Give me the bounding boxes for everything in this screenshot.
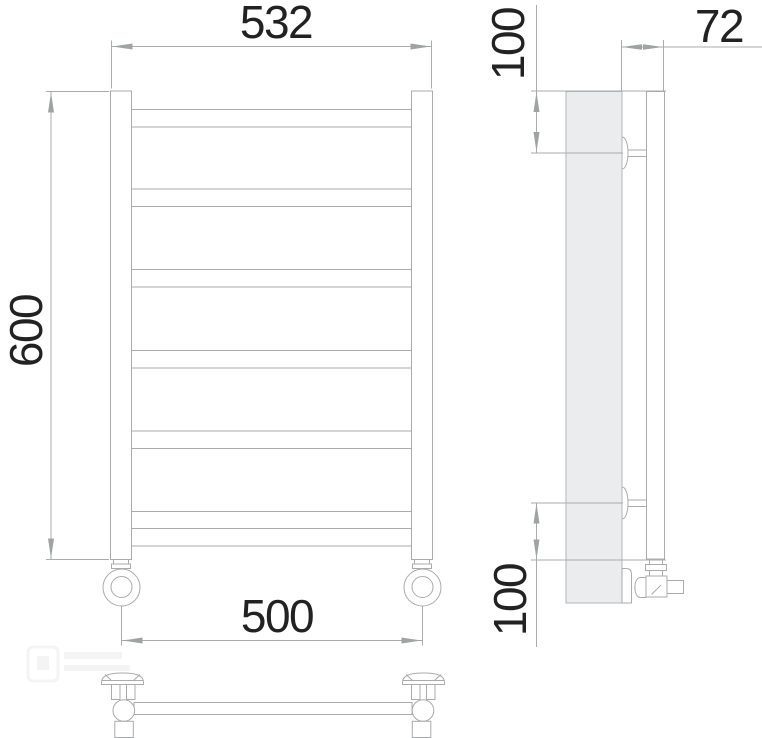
technical-drawing-svg: 532 600 500 72 100 100 <box>0 0 762 738</box>
dimension-connection-spacing: 500 <box>122 590 423 646</box>
dimension-depth: 72 <box>622 0 762 91</box>
front-view-left-valve <box>103 560 140 607</box>
front-view-posts <box>111 91 433 560</box>
dimension-overall-width: 532 <box>112 0 432 89</box>
plan-view-tube <box>134 703 412 715</box>
dimension-label-overall-width: 532 <box>240 0 312 48</box>
dimension-label-connection-spacing: 500 <box>241 590 313 642</box>
dimension-label-overall-height: 600 <box>0 295 52 367</box>
side-view-pipe <box>647 92 665 560</box>
front-view-rungs <box>132 110 412 547</box>
side-view <box>566 92 684 604</box>
wall-escutcheon <box>622 569 632 604</box>
dimension-label-bottom-offset: 100 <box>484 564 536 636</box>
drawing-canvas: 532 600 500 72 100 100 <box>0 0 762 738</box>
plan-view <box>102 673 445 738</box>
bottom-bracket <box>622 487 647 519</box>
dimension-label-depth: 72 <box>695 0 743 52</box>
dimension-overall-height: 600 <box>0 92 109 560</box>
top-bracket <box>622 137 647 169</box>
dimension-label-top-offset: 100 <box>482 8 534 80</box>
side-view-valve <box>635 559 684 598</box>
wall-panel <box>566 92 622 604</box>
front-view-right-valve <box>404 560 441 607</box>
front-view <box>103 91 441 606</box>
